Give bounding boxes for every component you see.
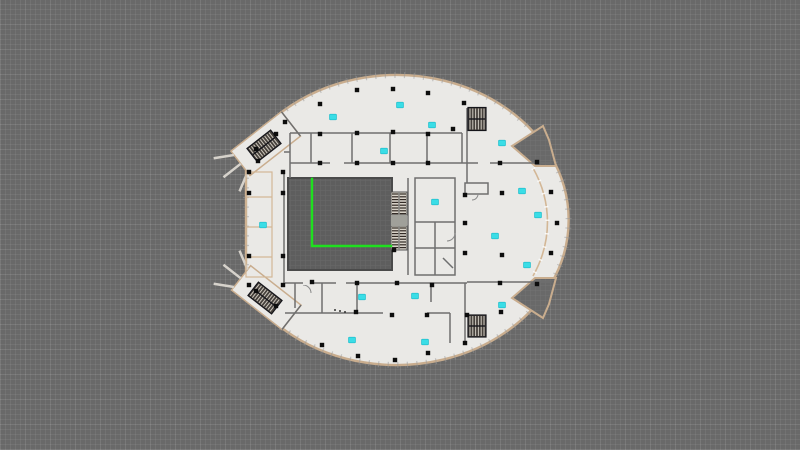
sensor-marker[interactable] — [412, 293, 419, 299]
column-marker — [281, 170, 285, 174]
atrium-void — [288, 178, 392, 270]
column-marker — [500, 191, 504, 195]
column-marker — [355, 161, 359, 165]
column-marker — [281, 191, 285, 195]
sensor-marker[interactable] — [432, 199, 439, 205]
column-marker — [426, 132, 430, 136]
column-marker — [498, 161, 502, 165]
sensor-marker[interactable] — [330, 114, 337, 120]
sensor-marker[interactable] — [397, 102, 404, 108]
sensor-marker[interactable] — [535, 212, 542, 218]
column-marker — [318, 132, 322, 136]
sensor-marker[interactable] — [260, 222, 267, 228]
column-marker — [391, 87, 395, 91]
column-marker — [355, 88, 359, 92]
column-marker — [426, 161, 430, 165]
column-marker — [256, 159, 260, 163]
column-marker — [356, 354, 360, 358]
column-marker — [318, 161, 322, 165]
column-marker — [274, 304, 278, 308]
column-marker — [391, 161, 395, 165]
column-marker — [274, 132, 278, 136]
column-marker — [393, 358, 397, 362]
column-marker — [426, 91, 430, 95]
column-marker — [254, 289, 258, 293]
drafting-canvas[interactable] — [0, 0, 800, 450]
column-marker — [395, 281, 399, 285]
column-marker — [463, 251, 467, 255]
column-marker — [555, 221, 559, 225]
stair-shaft — [468, 108, 486, 131]
sensor-marker[interactable] — [359, 294, 366, 300]
sensor-marker[interactable] — [381, 148, 388, 154]
column-marker — [354, 310, 358, 314]
column-marker — [451, 127, 455, 131]
column-marker — [549, 251, 553, 255]
column-marker — [535, 282, 539, 286]
column-marker — [499, 310, 503, 314]
column-marker — [535, 160, 539, 164]
sensor-marker[interactable] — [429, 122, 436, 128]
stair-shaft — [468, 315, 486, 337]
sensor-marker[interactable] — [422, 339, 429, 345]
column-marker — [318, 102, 322, 106]
column-marker — [355, 131, 359, 135]
column-marker — [247, 254, 251, 258]
column-marker — [320, 343, 324, 347]
sensor-marker[interactable] — [349, 337, 356, 343]
escalator-landing — [391, 215, 407, 226]
column-marker — [247, 191, 251, 195]
column-marker — [430, 283, 434, 287]
column-marker — [310, 280, 314, 284]
column-marker — [392, 248, 396, 252]
column-marker — [498, 281, 502, 285]
column-marker — [247, 170, 251, 174]
sensor-marker[interactable] — [499, 302, 506, 308]
column-marker — [247, 283, 251, 287]
column-marker — [254, 147, 258, 151]
column-marker — [465, 313, 469, 317]
sensor-marker[interactable] — [492, 233, 499, 239]
column-marker — [463, 221, 467, 225]
column-marker — [281, 283, 285, 287]
column-marker — [283, 120, 287, 124]
floorplan-svg[interactable] — [0, 0, 800, 450]
escalator-bank — [391, 192, 407, 250]
column-marker — [549, 190, 553, 194]
atrium-opening — [288, 178, 392, 270]
column-marker — [390, 313, 394, 317]
column-marker — [426, 351, 430, 355]
column-marker — [281, 254, 285, 258]
sensor-marker[interactable] — [519, 188, 526, 194]
column-marker — [500, 253, 504, 257]
sensor-marker[interactable] — [524, 262, 531, 268]
column-marker — [463, 193, 467, 197]
column-marker — [355, 281, 359, 285]
sensor-marker[interactable] — [499, 140, 506, 146]
column-marker — [463, 341, 467, 345]
column-marker — [425, 313, 429, 317]
column-marker — [391, 130, 395, 134]
column-marker — [462, 101, 466, 105]
